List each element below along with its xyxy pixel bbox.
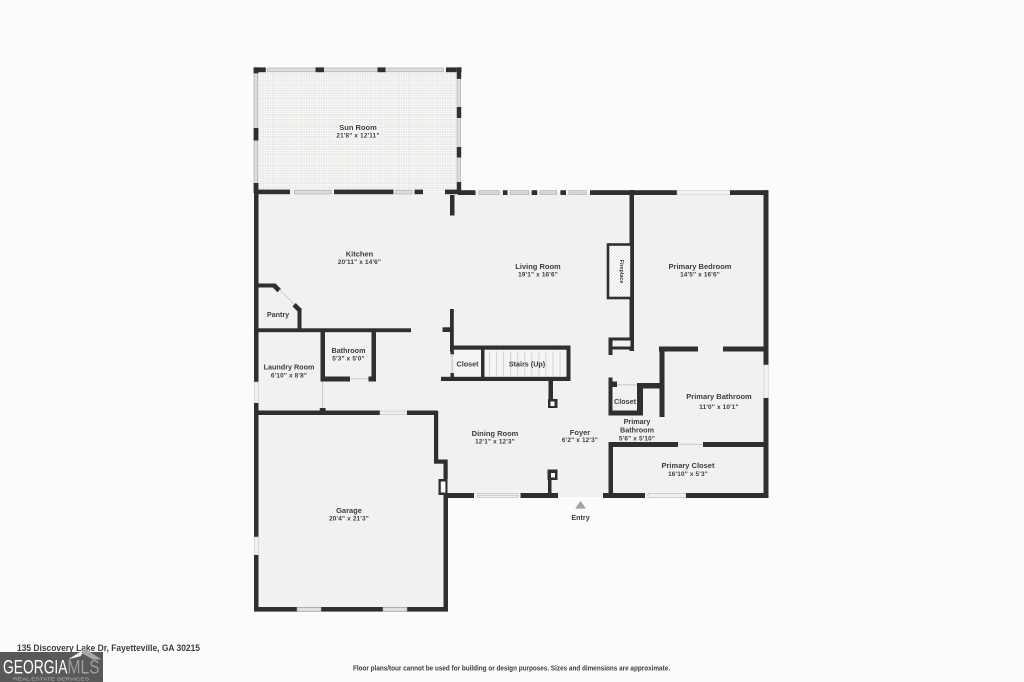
svg-text:GEORGIA: GEORGIA	[3, 657, 68, 679]
svg-text:14'5" x 16'6": 14'5" x 16'6"	[680, 272, 720, 279]
svg-text:20'11" x 14'6": 20'11" x 14'6"	[338, 259, 381, 266]
svg-text:Kitchen: Kitchen	[346, 250, 374, 259]
svg-text:21'8" x 12'11": 21'8" x 12'11"	[336, 133, 379, 140]
svg-text:6'2" x 12'3": 6'2" x 12'3"	[562, 437, 598, 444]
svg-text:Stairs (Up): Stairs (Up)	[509, 360, 546, 369]
svg-text:5'6" x 5'10": 5'6" x 5'10"	[619, 436, 655, 443]
svg-text:135 Discovery Lake Dr, Fayette: 135 Discovery Lake Dr, Fayetteville, GA …	[17, 643, 200, 653]
svg-text:12'1" x 12'3": 12'1" x 12'3"	[475, 439, 515, 446]
svg-text:Sun Room: Sun Room	[339, 123, 377, 132]
svg-text:Bathroom: Bathroom	[620, 426, 654, 435]
svg-text:Bathroom: Bathroom	[332, 346, 366, 355]
svg-text:Closet: Closet	[457, 360, 480, 369]
svg-text:Floor plans/tour cannot be use: Floor plans/tour cannot be used for buil…	[353, 666, 670, 673]
svg-text:REAL ESTATE SERVICES: REAL ESTATE SERVICES	[13, 676, 89, 681]
svg-text:Closet: Closet	[614, 397, 637, 406]
svg-text:Garage: Garage	[336, 506, 362, 515]
svg-text:Living Room: Living Room	[515, 262, 561, 271]
svg-text:Fireplace: Fireplace	[618, 260, 624, 284]
svg-text:6'10" x 8'8": 6'10" x 8'8"	[271, 373, 307, 380]
svg-text:16'10" x 5'3": 16'10" x 5'3"	[668, 471, 708, 478]
svg-text:20'4" x 21'3": 20'4" x 21'3"	[329, 516, 369, 523]
svg-text:Dining Room: Dining Room	[472, 429, 519, 438]
svg-text:Pantry: Pantry	[267, 310, 289, 319]
svg-text:Foyer: Foyer	[570, 428, 591, 437]
svg-text:Primary Bathroom: Primary Bathroom	[686, 392, 752, 401]
svg-text:5'3" x 5'0": 5'3" x 5'0"	[332, 356, 364, 363]
svg-text:19'1" x 16'6": 19'1" x 16'6"	[518, 272, 558, 279]
svg-text:Primary Closet: Primary Closet	[662, 461, 715, 470]
svg-text:MLS: MLS	[68, 657, 100, 679]
svg-text:Primary Bedroom: Primary Bedroom	[669, 262, 732, 271]
svg-text:11'0" x 10'1": 11'0" x 10'1"	[699, 404, 739, 411]
svg-text:Laundry Room: Laundry Room	[264, 363, 315, 372]
svg-text:Entry: Entry	[571, 513, 589, 522]
